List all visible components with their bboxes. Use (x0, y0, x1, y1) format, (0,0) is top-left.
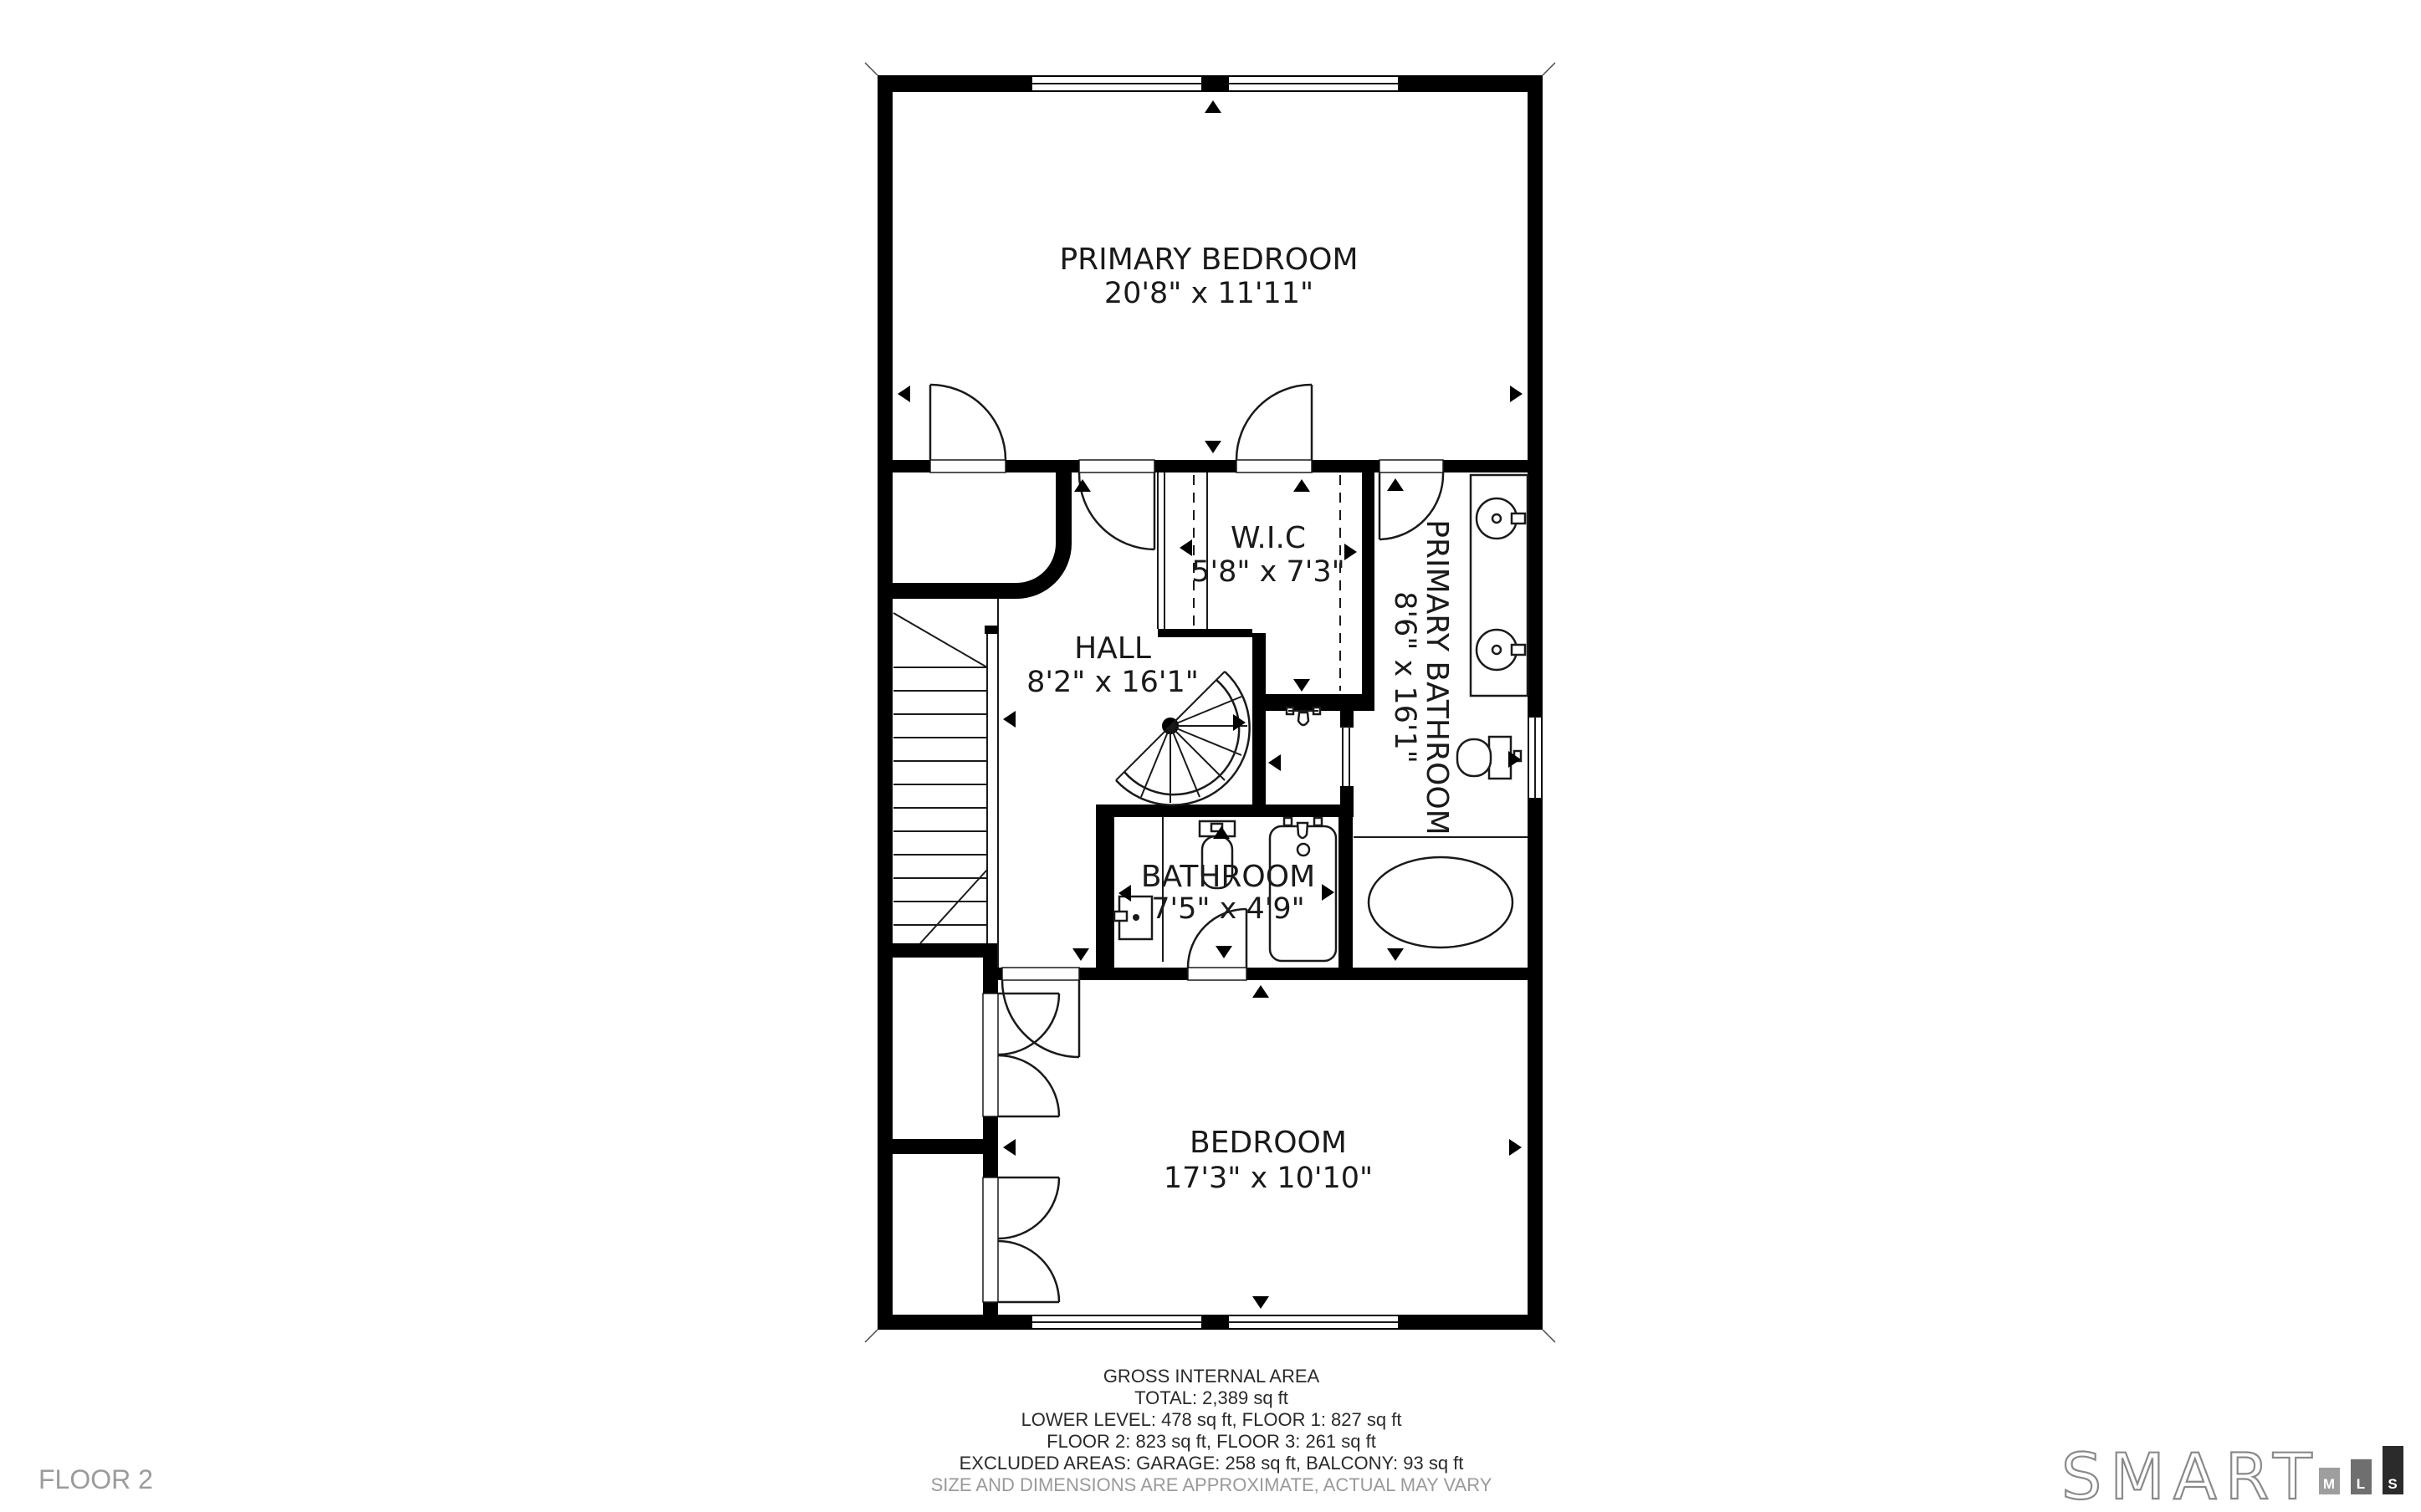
window (1031, 76, 1202, 91)
room-dims: 7'5" x 4'9" (1151, 892, 1304, 926)
room-dims: 20'8" x 11'11" (1104, 277, 1313, 310)
door-wic (1236, 385, 1312, 460)
logo-wordmark: SMART (2061, 1439, 2321, 1512)
dim-arrow-left (1180, 539, 1192, 556)
dim-arrow-left (898, 386, 910, 402)
dim-arrow-up (1387, 478, 1404, 491)
dim-arrow-up (1074, 479, 1091, 492)
logo-bar-letter: S (2388, 1476, 2397, 1492)
room-dims: 8'6" x 16'1" (1388, 591, 1421, 764)
closet-double-doors-upper (998, 994, 1059, 1116)
dim-arrow-up (1252, 985, 1269, 998)
room-name: W.I.C (1231, 521, 1306, 555)
dim-arrow-right (1509, 1139, 1522, 1156)
room-dims: 17'3" x 10'10" (1164, 1162, 1373, 1195)
closet-double-doors-lower (998, 1177, 1059, 1302)
gross-area-title: GROSS INTERNAL AREA (1103, 1366, 1320, 1387)
dim-arrow-right (1344, 544, 1357, 560)
faucet-icon (1512, 645, 1525, 655)
excluded-areas: EXCLUDED AREAS: GARAGE: 258 sq ft, BALCO… (960, 1453, 1464, 1474)
dim-arrow-left (1268, 754, 1281, 771)
window (1228, 1315, 1399, 1329)
window (1528, 717, 1542, 799)
area-summary: GROSS INTERNAL AREA TOTAL: 2,389 sq ft L… (931, 1366, 1492, 1495)
faucet-icon (1114, 912, 1127, 921)
logo-bar-letter: M (2323, 1476, 2335, 1492)
room-dims: 8'2" x 16'1" (1026, 666, 1199, 699)
total-area: TOTAL: 2,389 sq ft (1134, 1387, 1288, 1408)
stair-break-line (893, 613, 987, 667)
stair-break-line (920, 870, 987, 943)
room-labels: PRIMARY BEDROOM 20'8" x 11'11" W.I.C 5'8… (1026, 243, 1454, 1195)
room-dims: 5'8" x 7'3" (1191, 555, 1344, 589)
tub-tap (1284, 818, 1292, 825)
logo-bar-letter: L (2357, 1476, 2365, 1492)
window (1031, 1315, 1202, 1329)
dim-arrow-down (1205, 441, 1221, 453)
dim-arrow-down (1387, 948, 1404, 961)
toilet-tank (1489, 737, 1511, 779)
wc-spout-icon (1298, 713, 1308, 725)
room-name: BATHROOM (1141, 860, 1315, 894)
tub-drain (1298, 844, 1309, 856)
floor-label: FLOOR 2 (38, 1464, 153, 1494)
floorplan-page: PRIMARY BEDROOM 20'8" x 11'11" W.I.C 5'8… (0, 0, 2421, 1512)
room-name: PRIMARY BEDROOM (1059, 243, 1358, 277)
curved-wall (1016, 544, 1072, 599)
door-bedroom (1002, 980, 1079, 1057)
floorplan-svg: PRIMARY BEDROOM 20'8" x 11'11" W.I.C 5'8… (0, 0, 2421, 1512)
room-name: HALL (1074, 631, 1151, 666)
dim-arrow-left (1003, 1139, 1016, 1156)
toilet-bowl (1457, 739, 1491, 776)
dim-arrow-down (1072, 948, 1089, 961)
smartmls-logo: SMART M L S (2061, 1439, 2403, 1512)
dim-arrow-up (1205, 100, 1221, 113)
disclaimer: SIZE AND DIMENSIONS ARE APPROXIMATE, ACT… (931, 1474, 1492, 1495)
room-name: PRIMARY BATHROOM (1420, 519, 1454, 835)
levels-line-2: FLOOR 2: 823 sq ft, FLOOR 3: 261 sq ft (1047, 1431, 1376, 1452)
room-name: BEDROOM (1190, 1126, 1347, 1160)
stairs (893, 599, 998, 968)
door-primary-bedroom-closet (930, 385, 1006, 460)
dim-arrow-left (1003, 711, 1016, 728)
levels-line-1: LOWER LEVEL: 478 sq ft, FLOOR 1: 827 sq … (1021, 1409, 1402, 1430)
dim-arrow-down (1252, 1296, 1269, 1309)
dim-arrow-down (1293, 679, 1310, 692)
dim-arrow-right (1510, 386, 1523, 402)
dim-arrow-down (1216, 946, 1232, 958)
door-hall (1079, 472, 1154, 549)
window (1228, 76, 1399, 91)
tub-spout-icon (1298, 823, 1308, 838)
oval-tub (1369, 857, 1512, 948)
tub-tap (1314, 818, 1322, 825)
dim-arrow-up (1293, 479, 1310, 492)
faucet-icon (1512, 513, 1525, 524)
